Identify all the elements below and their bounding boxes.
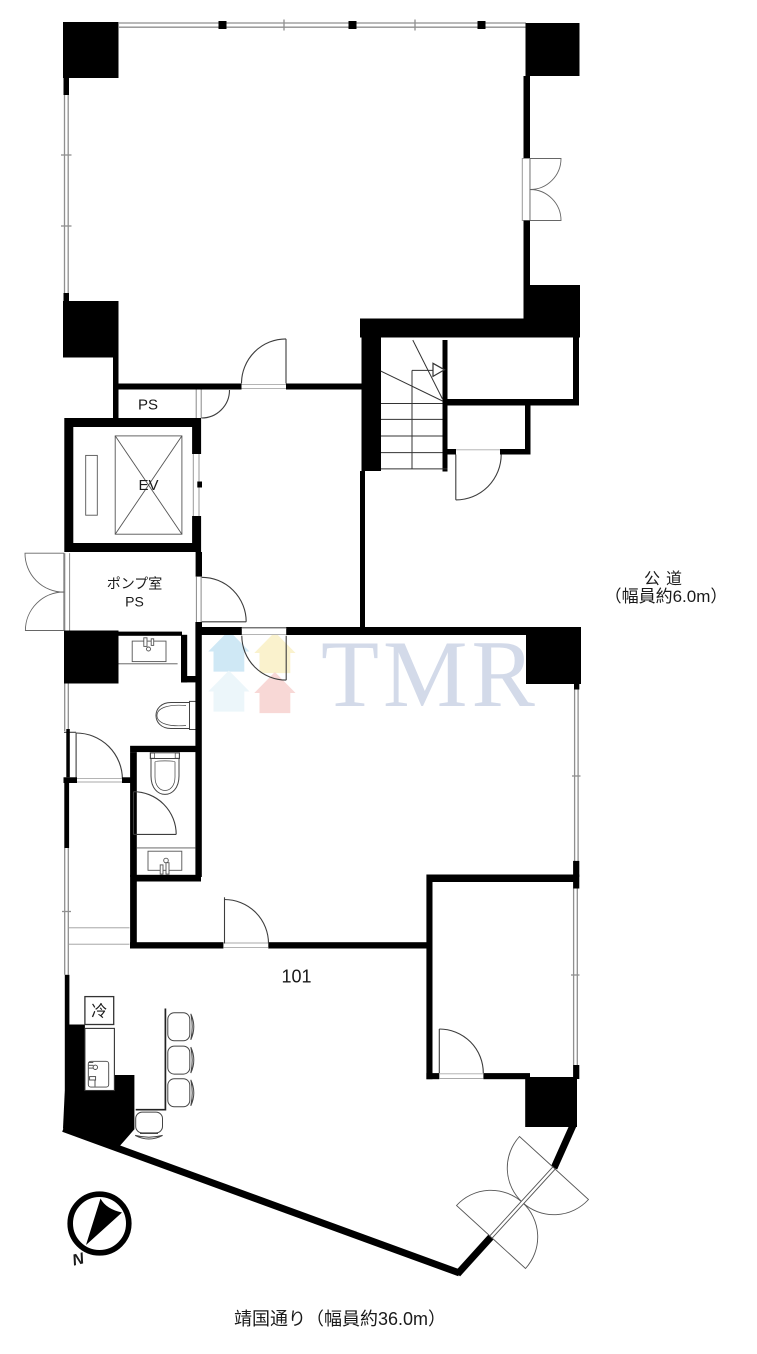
svg-text:公道: 公道 — [644, 570, 688, 588]
svg-text:（幅員約6.0m）: （幅員約6.0m） — [605, 587, 728, 606]
svg-text:EV: EV — [138, 477, 158, 494]
svg-text:ポンプ室: ポンプ室 — [107, 576, 163, 592]
svg-text:PS: PS — [138, 397, 158, 414]
svg-text:冷: 冷 — [91, 1003, 107, 1021]
svg-text:101: 101 — [281, 967, 311, 987]
svg-text:TMR: TMR — [321, 621, 539, 727]
svg-text:PS: PS — [125, 594, 144, 610]
svg-text:靖国通り（幅員約36.0m）: 靖国通り（幅員約36.0m） — [234, 1309, 446, 1329]
